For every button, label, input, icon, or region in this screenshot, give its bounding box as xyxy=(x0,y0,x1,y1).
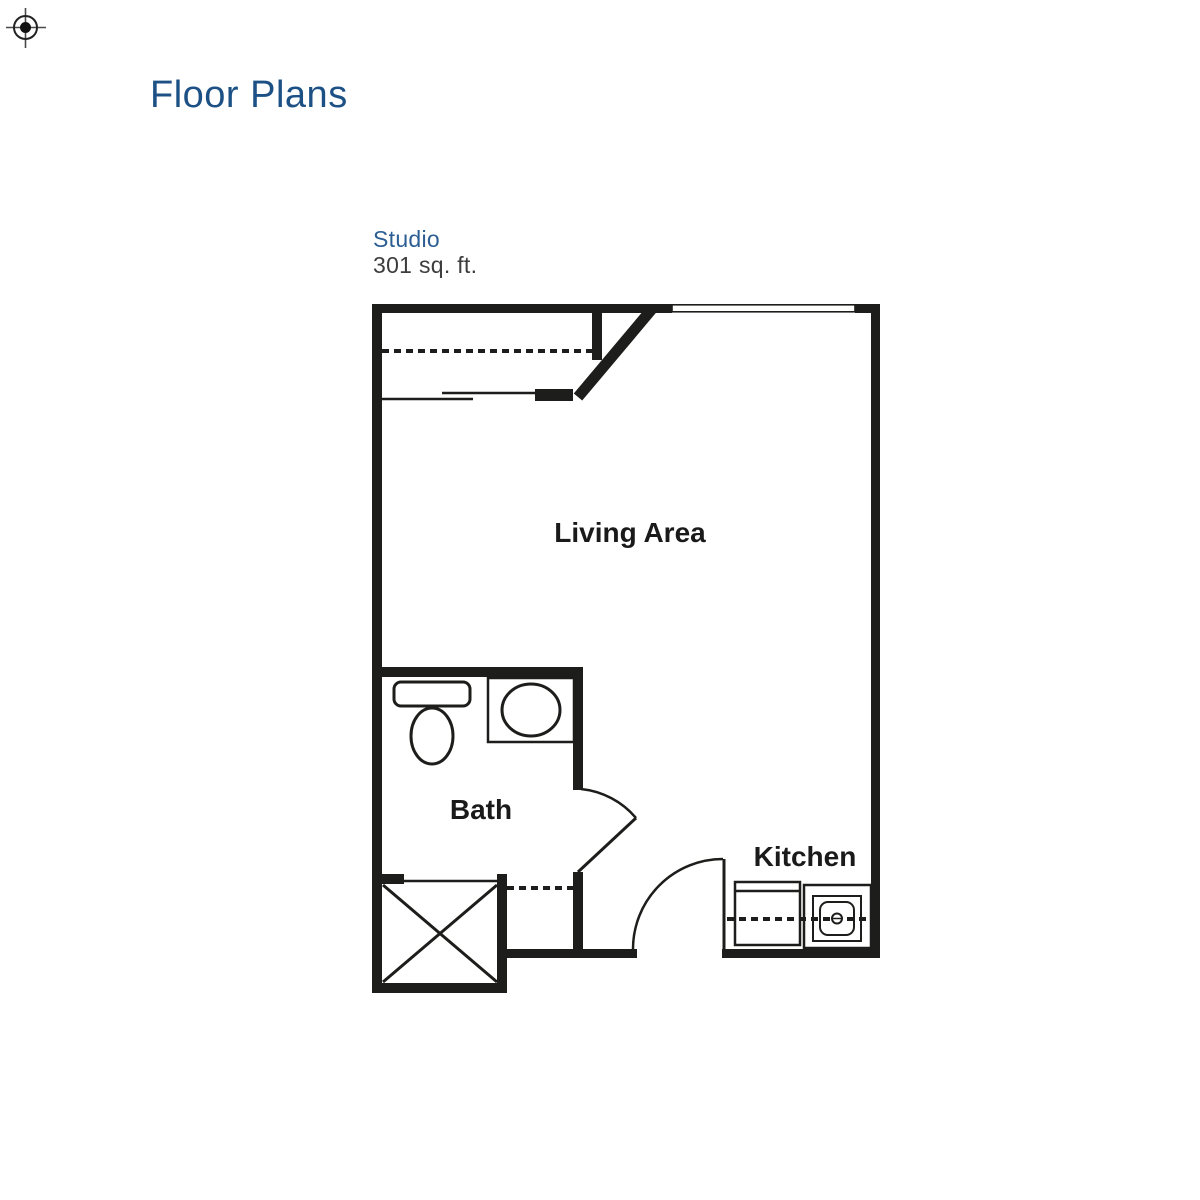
wall-bottom-right-segment xyxy=(722,949,880,958)
floor-plan-drawing: Living Area Bath Kitchen xyxy=(0,0,1200,1200)
wall-left xyxy=(372,304,382,993)
toilet-tank xyxy=(394,682,470,706)
floor-plans-page: Floor Plans Studio 301 sq. ft. xyxy=(0,0,1200,1200)
wall-bath-right-lower xyxy=(573,872,583,950)
wall-shower-box-bottom xyxy=(372,983,507,993)
entry-door-swing xyxy=(633,859,724,949)
kitchen-fixtures xyxy=(727,882,871,948)
bath-label: Bath xyxy=(450,794,512,825)
bath-door-swing xyxy=(578,789,636,872)
oval-sink-icon xyxy=(502,684,560,736)
wall-top-left-segment xyxy=(372,304,672,313)
bath-door-arc xyxy=(581,789,636,818)
bath-fixtures xyxy=(394,678,574,764)
living-area-label: Living Area xyxy=(554,517,706,548)
wall-bottom-bath-segment xyxy=(503,949,637,958)
wall-shower-box-right xyxy=(497,874,507,993)
wall-right xyxy=(871,304,880,958)
wall-closet-stub-horizontal xyxy=(535,389,573,401)
wall-bath-top xyxy=(372,667,583,677)
toilet-bowl xyxy=(411,708,453,764)
bath-door-leaf xyxy=(578,818,636,872)
wall-shower-box-top-stub xyxy=(376,874,404,884)
entry-door-arc xyxy=(633,859,723,949)
wall-closet-stub-vertical xyxy=(592,304,602,360)
window-symbol xyxy=(672,305,855,312)
x-box-shower-icon xyxy=(383,881,497,982)
kitchen-label: Kitchen xyxy=(754,841,857,872)
